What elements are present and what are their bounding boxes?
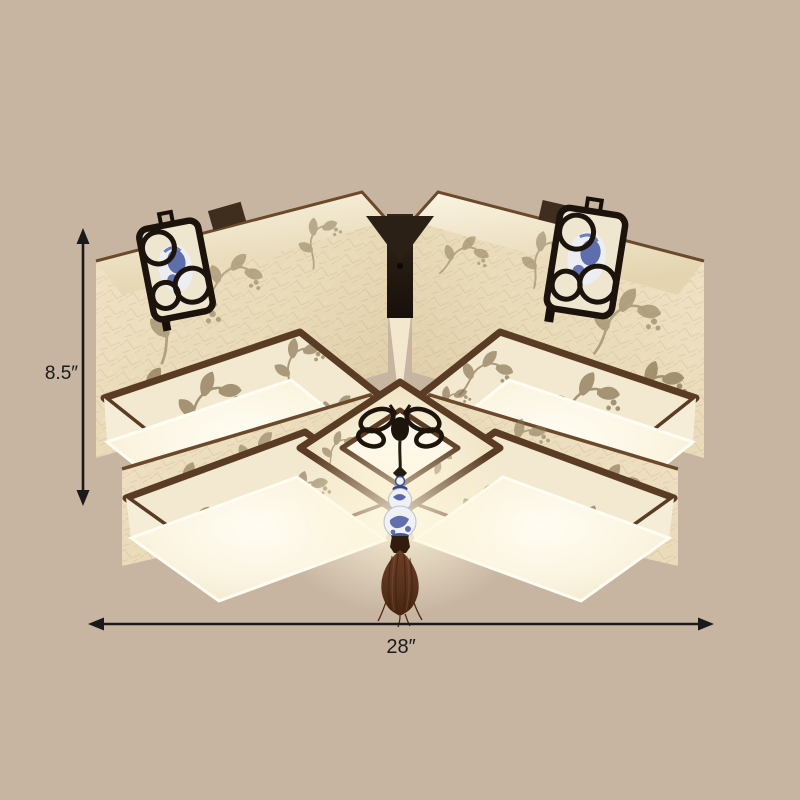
- width-dimension-label: 28″: [386, 636, 415, 658]
- ceiling-light-illustration: 8.5″ 28″: [0, 0, 800, 800]
- product-photo: 8.5″ 28″: [0, 0, 800, 800]
- height-dimension-label: 8.5″: [45, 363, 78, 384]
